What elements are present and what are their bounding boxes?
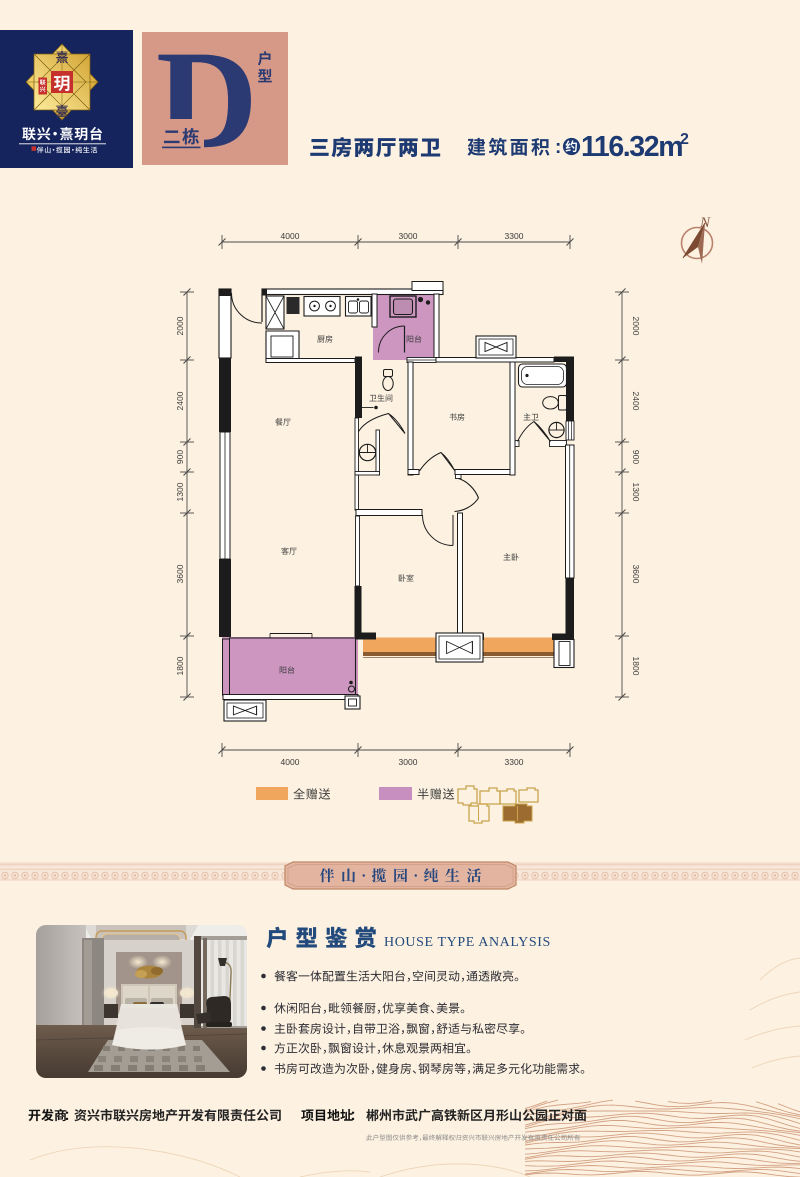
svg-text:1800: 1800 [631, 657, 641, 676]
svg-text:1300: 1300 [175, 482, 185, 501]
svg-text:N: N [699, 215, 711, 231]
svg-text:2400: 2400 [175, 391, 185, 410]
svg-text:3300: 3300 [505, 757, 524, 767]
svg-text:2: 2 [680, 131, 689, 148]
svg-text:3600: 3600 [631, 565, 641, 584]
svg-text:900: 900 [175, 450, 185, 464]
svg-text::: : [555, 137, 561, 158]
svg-text:3600: 3600 [175, 564, 185, 583]
svg-text:4000: 4000 [281, 757, 300, 767]
svg-text:1800: 1800 [175, 656, 185, 675]
svg-text:2400: 2400 [631, 392, 641, 411]
svg-text:2000: 2000 [631, 317, 641, 336]
svg-text:3000: 3000 [399, 757, 418, 767]
svg-text:4000: 4000 [281, 231, 300, 241]
svg-text:2000: 2000 [175, 316, 185, 335]
svg-text:1300: 1300 [631, 483, 641, 502]
svg-text:3000: 3000 [399, 231, 418, 241]
svg-text:116.32m: 116.32m [581, 131, 682, 163]
svg-text:3300: 3300 [505, 231, 524, 241]
svg-text:900: 900 [631, 450, 641, 464]
svg-text:HOUSE TYPE ANALYSIS: HOUSE TYPE ANALYSIS [384, 935, 551, 950]
